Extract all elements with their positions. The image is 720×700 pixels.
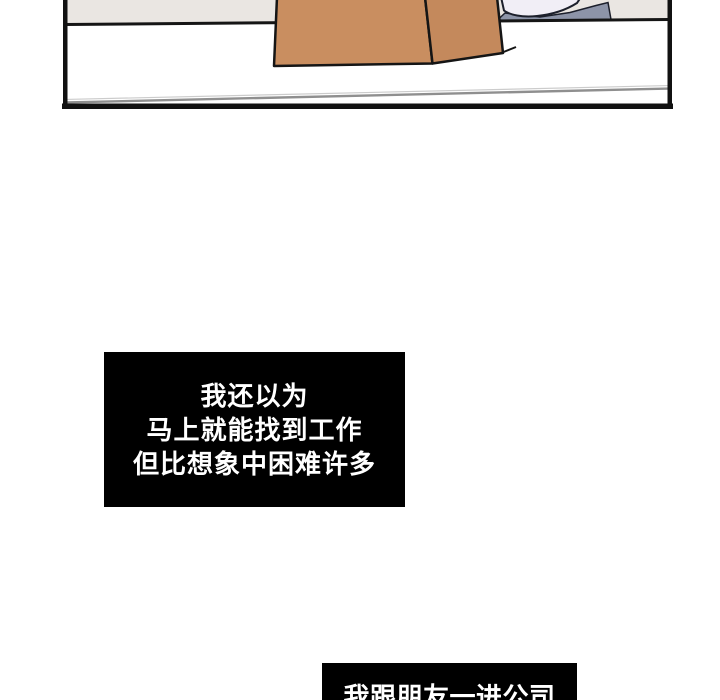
comic-panel bbox=[0, 0, 720, 112]
cardboard-box-front bbox=[274, 0, 433, 66]
caption-line: 但比想象中困难许多 bbox=[133, 447, 376, 481]
caption-line: 我跟朋友一进公司 bbox=[322, 680, 577, 700]
webtoon-page: 我还以为 马上就能找到工作 但比想象中困难许多 我跟朋友一进公司 bbox=[0, 0, 720, 700]
cardboard-box-side bbox=[425, 0, 503, 64]
caption-line: 我还以为 bbox=[200, 379, 308, 413]
panel-border-right bbox=[668, 0, 673, 109]
panel-border-bottom bbox=[62, 104, 673, 110]
caption-line: 马上就能找到工作 bbox=[146, 413, 362, 447]
narration-box-2: 我跟朋友一进公司 bbox=[322, 663, 577, 700]
narration-box-1: 我还以为 马上就能找到工作 但比想象中困难许多 bbox=[104, 352, 405, 507]
panel-border-left bbox=[63, 0, 68, 109]
